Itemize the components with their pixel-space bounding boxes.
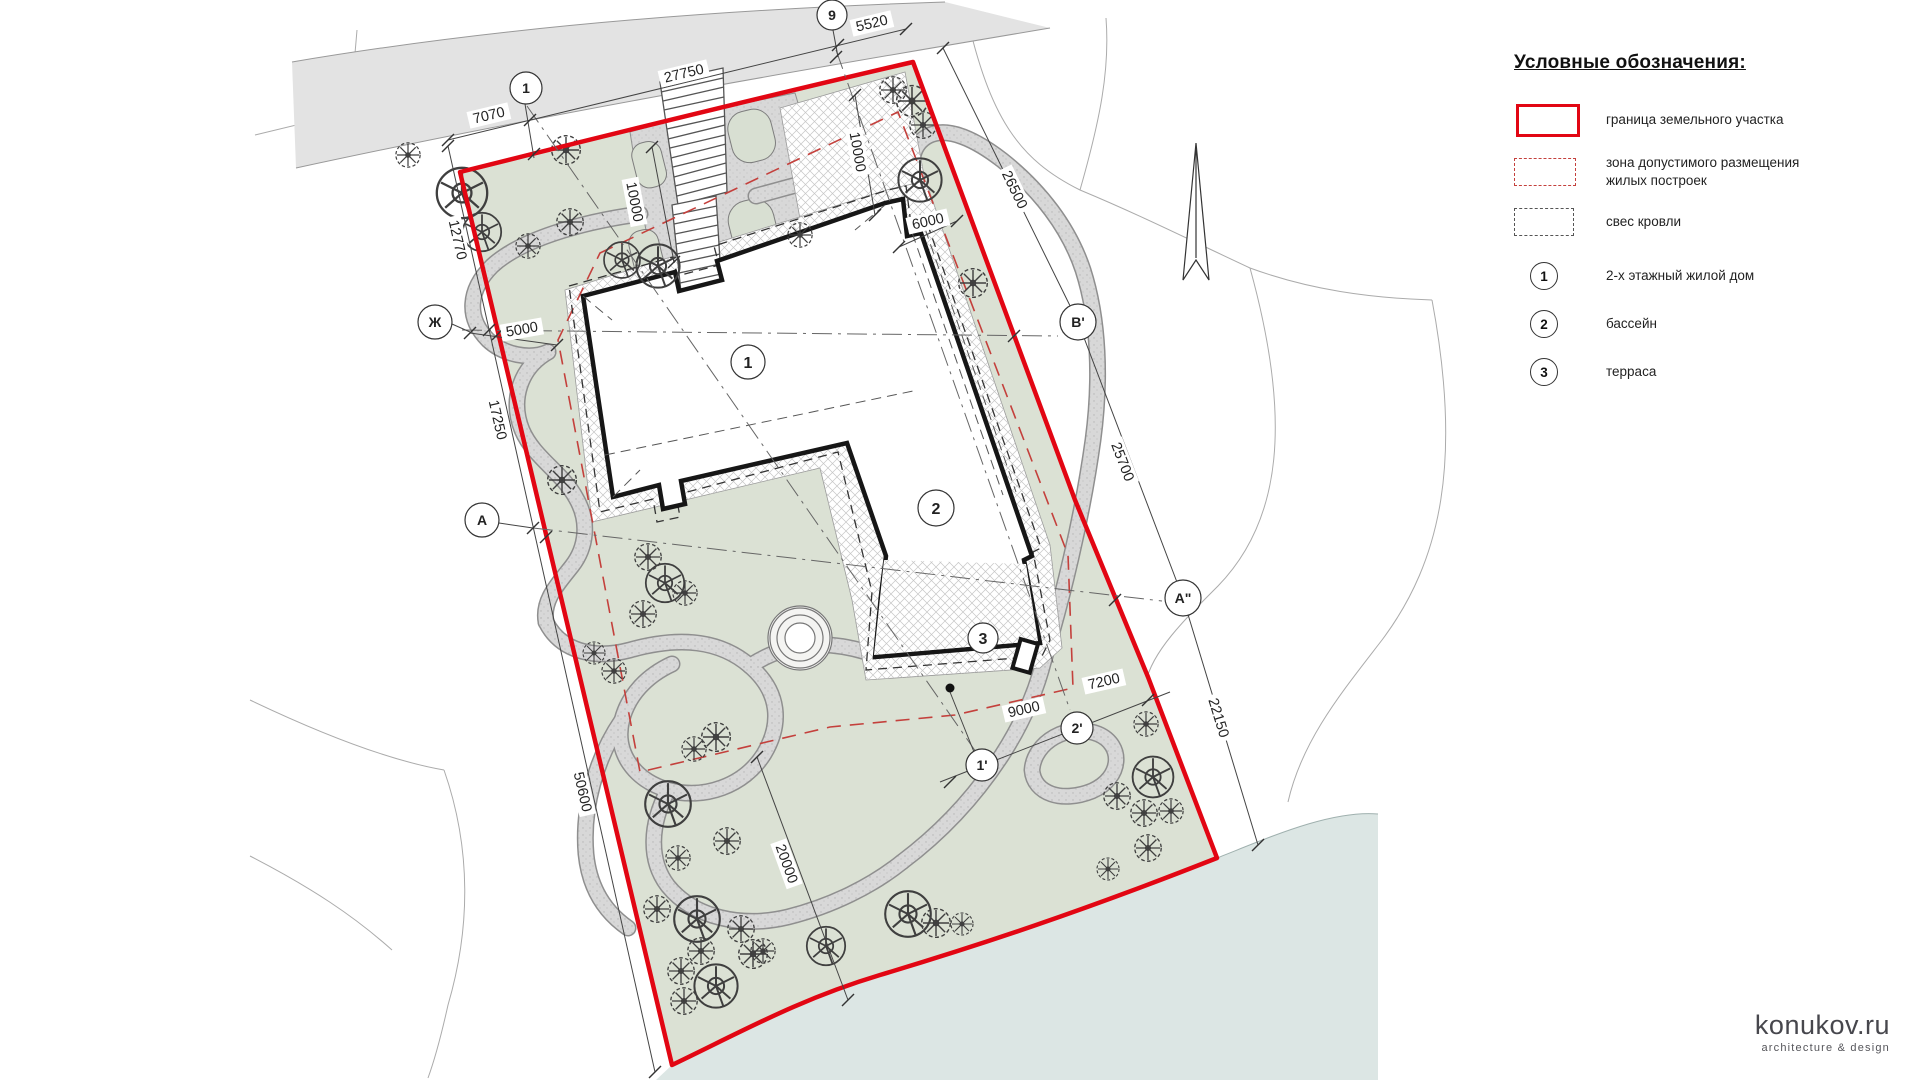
legend-label: зона допустимого размещения жилых постро… bbox=[1606, 154, 1816, 190]
axis-2-prime: 2' bbox=[1071, 720, 1082, 736]
legend-item-boundary: граница земельного участка bbox=[1510, 104, 1816, 137]
roof-overhang-symbol bbox=[1514, 208, 1574, 236]
studio-logo: konukov.ru architecture & design bbox=[1755, 1010, 1890, 1054]
label-pool: 2 bbox=[932, 501, 941, 518]
dim-25700: 25700 bbox=[1107, 440, 1136, 483]
circle-1-symbol: 1 bbox=[1530, 262, 1558, 290]
circle-2-symbol: 2 bbox=[1530, 310, 1558, 338]
axis-1: 1 bbox=[522, 80, 530, 96]
legend-item-terrace: 3 терраса bbox=[1510, 358, 1816, 386]
legend-label: граница земельного участка bbox=[1606, 111, 1816, 129]
logo-name: konukov.ru bbox=[1755, 1010, 1890, 1041]
logo-tagline: architecture & design bbox=[1755, 1042, 1890, 1054]
label-terrace: 3 bbox=[979, 631, 988, 648]
axis-b-prime: В' bbox=[1071, 314, 1084, 330]
legend-item-roof: свес кровли bbox=[1510, 208, 1816, 236]
axis-a-dprime: А" bbox=[1175, 590, 1192, 606]
axis-zh: Ж bbox=[428, 314, 442, 330]
legend-label: бассейн bbox=[1606, 315, 1816, 333]
legend-item-pool: 2 бассейн bbox=[1510, 310, 1816, 338]
axis-9: 9 bbox=[828, 7, 836, 23]
boundary-symbol bbox=[1516, 104, 1580, 137]
circle-3-symbol: 3 bbox=[1530, 358, 1558, 386]
site-plan-page: 7070 27750 5520 12770 17250 50600 5000 1… bbox=[0, 0, 1920, 1080]
legend-label: свес кровли bbox=[1606, 213, 1816, 231]
legend-title: Условные обозначения: bbox=[1514, 52, 1850, 74]
legend-item-house: 1 2-х этажный жилой дом bbox=[1510, 262, 1816, 290]
terrace-area bbox=[874, 560, 1038, 655]
fountain bbox=[768, 606, 832, 670]
legend: Условные обозначения: граница земельного… bbox=[1510, 52, 1850, 78]
dim-22150: 22150 bbox=[1204, 696, 1231, 739]
label-house: 1 bbox=[744, 355, 753, 372]
legend-item-zone: зона допустимого размещения жилых постро… bbox=[1510, 154, 1816, 190]
reference-dot bbox=[946, 684, 955, 693]
legend-label: терраса bbox=[1606, 363, 1816, 381]
axis-1-prime: 1' bbox=[976, 757, 987, 773]
north-arrow-icon bbox=[1183, 143, 1209, 280]
legend-label: 2-х этажный жилой дом bbox=[1606, 267, 1816, 285]
axis-a: А bbox=[477, 512, 487, 528]
zone-symbol bbox=[1514, 158, 1576, 186]
